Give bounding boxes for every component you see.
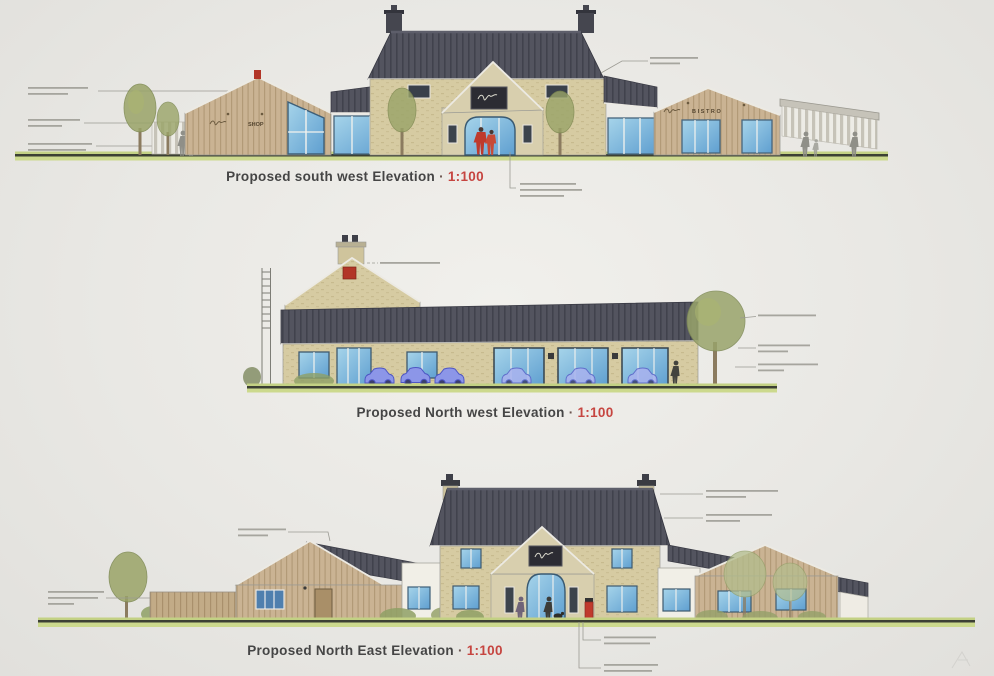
southwest-elevation-title: Proposed south west Elevation: [226, 169, 435, 184]
annotation-note: [735, 364, 818, 372]
door: [315, 589, 332, 622]
fence: [150, 592, 238, 621]
long-wing: [281, 302, 698, 386]
annotation-note: [664, 514, 772, 522]
northeast-elevation-title: Proposed North East Elevation: [247, 643, 454, 658]
southwest-elevation-caption: Proposed south west Elevation·1:100: [155, 169, 555, 184]
right-wing: [658, 545, 868, 625]
bistro-wing: BISTRO: [654, 88, 780, 155]
annotation-note: [738, 345, 810, 353]
porch-side-window: [523, 125, 532, 143]
drawing-sheet: SHOP: [0, 0, 994, 676]
gate-sign-plaque: [471, 87, 507, 109]
annotation-note: [367, 262, 440, 264]
chimney: [384, 5, 404, 33]
pergola: [780, 99, 879, 149]
northeast-elevation-caption: Proposed North East Elevation·1:100: [175, 643, 575, 658]
southwest-elevation-scale: 1:100: [448, 169, 484, 184]
elevations-artwork: SHOP: [0, 0, 994, 676]
roof-box-red: [343, 267, 356, 279]
ladder-flue: [262, 268, 271, 386]
chimney: [576, 5, 596, 33]
shop-wing: SHOP: [185, 70, 331, 155]
corner-artifact: [952, 652, 970, 668]
northwest-elevation-scale: 1:100: [578, 405, 614, 420]
annotation-note: [238, 529, 330, 542]
bistro-sign-text: BISTRO: [692, 109, 722, 115]
tree: [109, 552, 147, 622]
caption-separator: ·: [569, 405, 574, 420]
central-block: [430, 474, 670, 624]
central-block: [368, 5, 606, 155]
ground-line: [247, 384, 777, 393]
porch-side-window: [505, 587, 514, 613]
porch-side-window: [448, 125, 457, 143]
northwest-elevation-title: Proposed North west Elevation: [356, 405, 564, 420]
ridge-finial-red: [254, 70, 261, 79]
left-wing: [236, 541, 459, 624]
annotation-note: [601, 57, 698, 73]
shop-sign-text: SHOP: [248, 122, 264, 128]
northwest-elevation-caption: Proposed North west Elevation·1:100: [300, 405, 670, 420]
annotation-note: [740, 315, 816, 319]
annotation-note: [579, 622, 658, 672]
northwest-elevation-drawing: [243, 235, 818, 393]
ground-line: [38, 618, 975, 628]
tree: [124, 84, 156, 155]
link-right: [604, 76, 657, 154]
caption-separator: ·: [439, 169, 444, 184]
caption-separator: ·: [458, 643, 463, 658]
annotation-note: [660, 490, 778, 498]
northeast-elevation-scale: 1:100: [467, 643, 503, 658]
gate-sign-plaque: [529, 546, 562, 566]
porch-side-window: [569, 587, 578, 613]
window: [256, 590, 284, 609]
